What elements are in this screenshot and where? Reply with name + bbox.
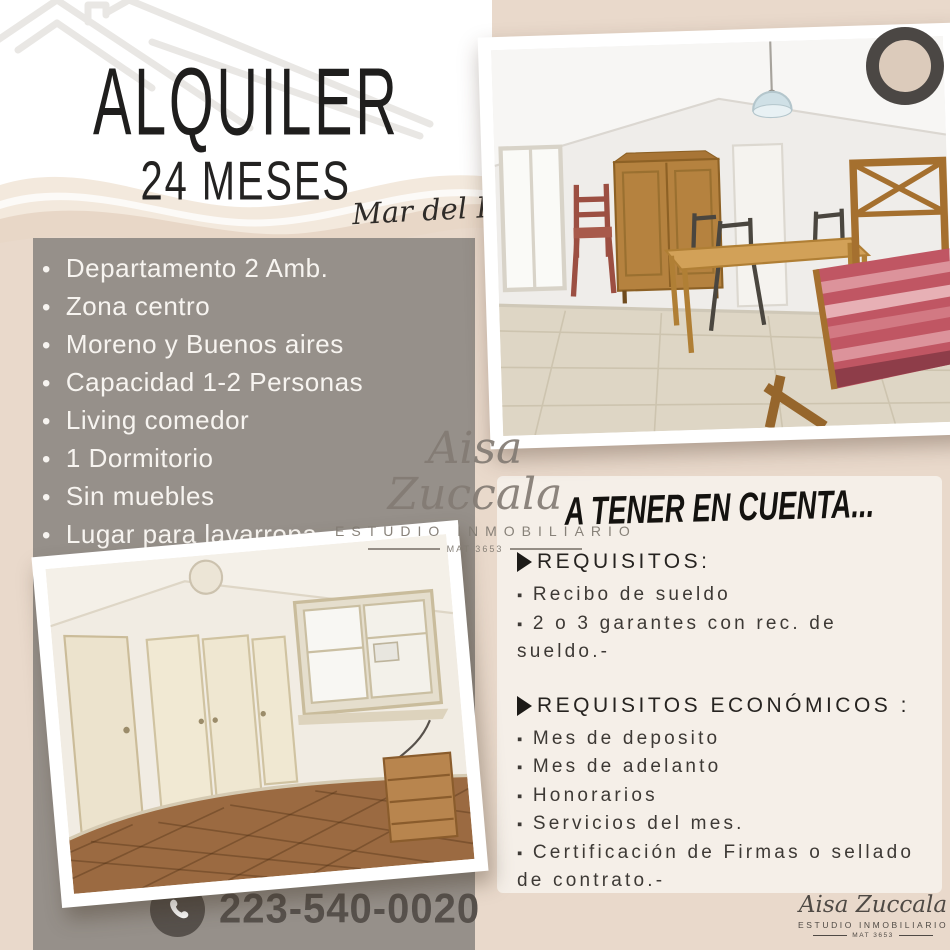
feature-item: Departamento 2 Amb.	[42, 250, 363, 288]
requisito-item: Honorarios	[517, 782, 922, 811]
requisitos-economicos-title-text: REQUISITOS ECONÓMICOS :	[537, 694, 910, 718]
page-subtitle: 24 MESES	[0, 150, 492, 198]
page-subtitle-text: 24 MESES	[141, 150, 351, 212]
notice-panel: A TENER EN CUENTA... REQUISITOS: Recibo …	[497, 476, 942, 893]
agency-logo-name: Aisa Zuccala	[798, 893, 948, 918]
feature-item: Sin muebles	[42, 478, 363, 516]
photo-bedroom	[31, 520, 488, 908]
requisitos-economicos-section: REQUISITOS ECONÓMICOS : Mes de deposito …	[517, 694, 942, 895]
agency-logo: Aisa Zuccala ESTUDIO INMOBILIARIO MAT 36…	[798, 893, 948, 939]
requisito-item: Mes de adelanto	[517, 753, 922, 782]
requisitos-economicos-items: Mes de deposito Mes de adelanto Honorari…	[517, 725, 922, 895]
requisito-item: Recibo de sueldo	[517, 581, 922, 610]
requisito-item: Certificación de Firmas o sellado de con…	[517, 839, 922, 895]
phone-number: 223-540-0020	[219, 886, 480, 933]
page-title-text: ALQUILER	[93, 46, 400, 157]
arrow-right-icon	[517, 552, 532, 572]
requisitos-title-row: REQUISITOS:	[517, 550, 942, 574]
feature-item: Living comedor	[42, 402, 363, 440]
bedroom-illustration	[46, 534, 475, 894]
arrow-right-icon	[517, 696, 532, 716]
wardrobe	[614, 150, 723, 303]
divider-line	[899, 935, 933, 936]
requisito-item: Servicios del mes.	[517, 810, 922, 839]
requisitos-title-text: REQUISITOS:	[537, 550, 710, 574]
ring-ornament-icon	[866, 27, 944, 105]
feature-item: Zona centro	[42, 288, 363, 326]
notice-heading-text: A TENER EN CUENTA...	[564, 483, 875, 536]
agency-logo-license: MAT 3653	[798, 932, 948, 939]
agency-logo-tagline: ESTUDIO INMOBILIARIO	[798, 920, 948, 930]
notice-heading: A TENER EN CUENTA...	[497, 492, 942, 526]
agency-logo-license-text: MAT 3653	[852, 932, 893, 939]
window	[501, 147, 565, 290]
feature-item: Capacidad 1-2 Personas	[42, 364, 363, 402]
window	[288, 590, 449, 731]
feature-item: Moreno y Buenos aires	[42, 326, 363, 364]
divider-line	[813, 935, 847, 936]
dresser	[384, 753, 458, 842]
requisito-item: Mes de deposito	[517, 725, 922, 754]
requisito-item: 2 o 3 garantes con rec. de sueldo.-	[517, 610, 922, 666]
feature-list: Departamento 2 Amb. Zona centro Moreno y…	[42, 250, 363, 554]
requisitos-section: REQUISITOS: Recibo de sueldo 2 o 3 garan…	[517, 550, 942, 666]
page-title: ALQUILER	[0, 46, 492, 120]
requisitos-items: Recibo de sueldo 2 o 3 garantes con rec.…	[517, 581, 922, 666]
closet-doors	[147, 628, 299, 807]
feature-item: 1 Dormitorio	[42, 440, 363, 478]
requisitos-economicos-title-row: REQUISITOS ECONÓMICOS :	[517, 694, 942, 718]
